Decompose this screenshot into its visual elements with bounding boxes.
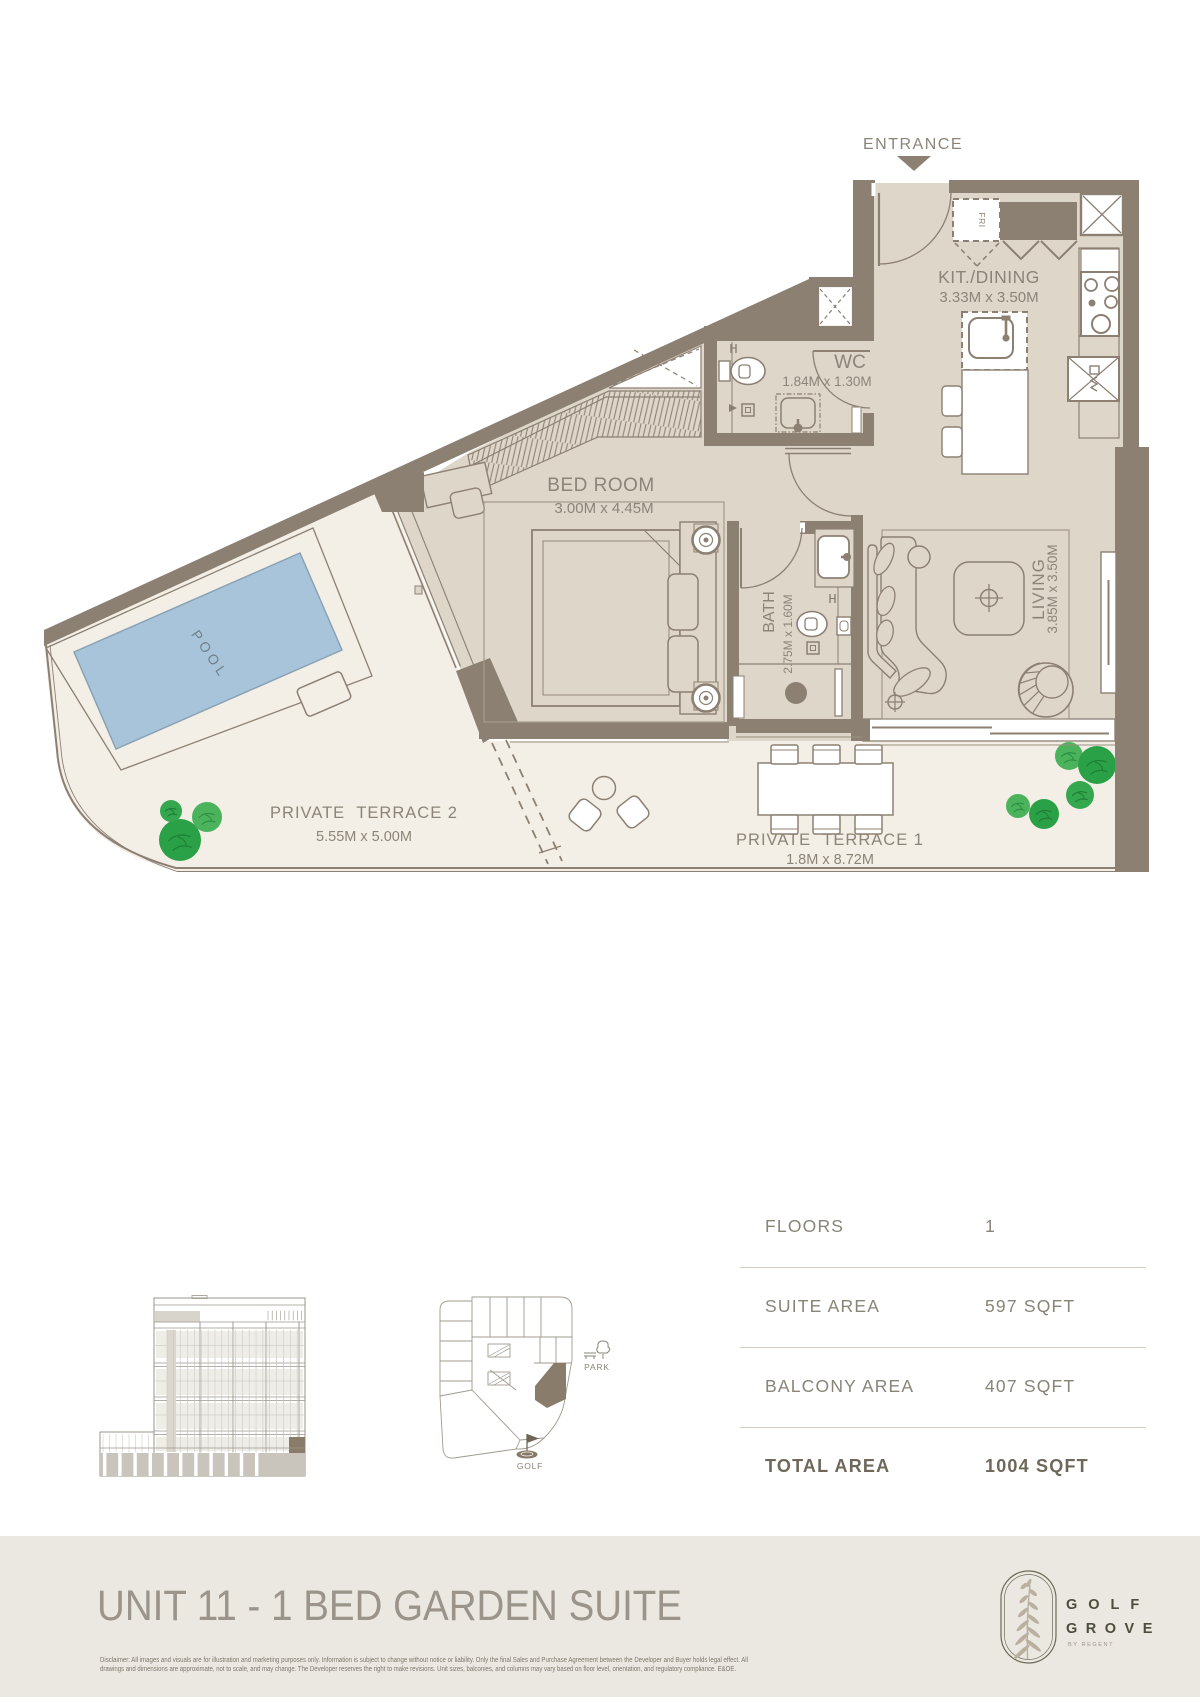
svg-text:BALCONY AREA: BALCONY AREA: [765, 1376, 914, 1396]
svg-text:1.8M x 8.72M: 1.8M x 8.72M: [786, 852, 874, 868]
svg-text:BATH: BATH: [761, 591, 778, 632]
svg-text:3.33M x 3.50M: 3.33M x 3.50M: [939, 289, 1038, 306]
svg-text:3.85M x 3.50M: 3.85M x 3.50M: [1045, 544, 1060, 633]
svg-text:GOLF: GOLF: [517, 1461, 543, 1471]
svg-text:ENTRANCE: ENTRANCE: [863, 136, 963, 153]
svg-text:SUITE AREA: SUITE AREA: [765, 1296, 880, 1316]
svg-text:GROVE: GROVE: [1066, 1621, 1161, 1637]
svg-text:5.55M x 5.00M: 5.55M x 5.00M: [316, 829, 412, 845]
svg-text:2.75M x 1.60M: 2.75M x 1.60M: [781, 594, 795, 673]
svg-text:1004 SQFT: 1004 SQFT: [985, 1456, 1089, 1476]
svg-text:drawings and dimensions are ap: drawings and dimensions are approximate,…: [100, 1666, 736, 1673]
svg-text:407 SQFT: 407 SQFT: [985, 1376, 1075, 1396]
svg-text:FRI: FRI: [977, 212, 987, 227]
svg-text:3.00M x 4.45M: 3.00M x 4.45M: [554, 500, 653, 517]
svg-text:FLOORS: FLOORS: [765, 1216, 844, 1236]
svg-text:WC: WC: [834, 352, 866, 373]
svg-text:BED ROOM: BED ROOM: [547, 475, 654, 496]
svg-text:KIT./DINING: KIT./DINING: [938, 267, 1040, 287]
svg-text:BY REGENT: BY REGENT: [1068, 1642, 1114, 1648]
svg-text:597 SQFT: 597 SQFT: [985, 1296, 1075, 1316]
svg-text:UNIT 11 - 1 BED GARDEN SUITE: UNIT 11 - 1 BED GARDEN SUITE: [97, 1582, 682, 1630]
svg-text:GOLF: GOLF: [1066, 1597, 1150, 1613]
svg-text:1.84M x 1.30M: 1.84M x 1.30M: [782, 374, 871, 389]
svg-text:1: 1: [985, 1216, 996, 1236]
svg-text:PARK: PARK: [584, 1362, 610, 1372]
svg-text:PRIVATE TERRACE 2: PRIVATE TERRACE 2: [270, 804, 458, 822]
svg-text:TOTAL AREA: TOTAL AREA: [765, 1456, 890, 1476]
svg-text:Disclaimer: All images and vis: Disclaimer: All images and visuals are f…: [100, 1657, 748, 1664]
